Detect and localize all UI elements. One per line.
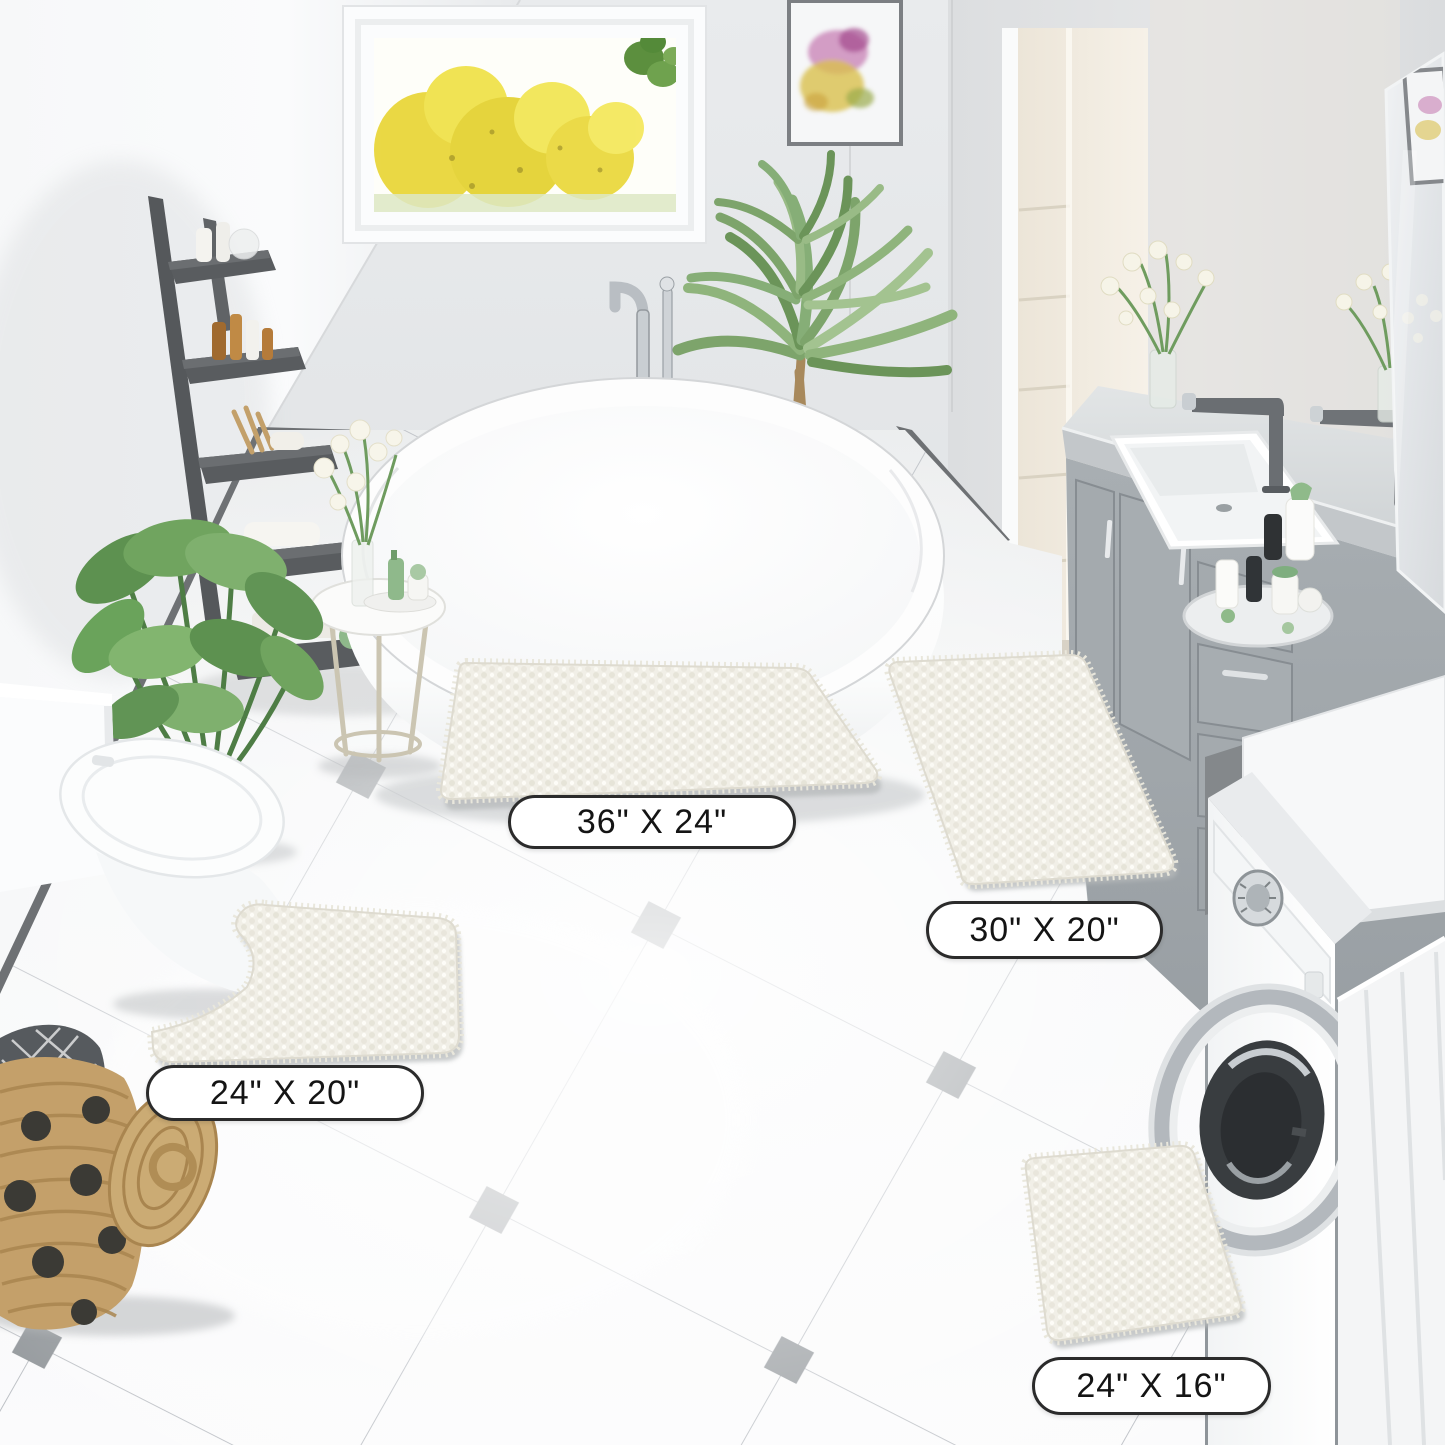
mat-36x24	[441, 663, 881, 810]
window	[343, 6, 706, 243]
wall-art	[789, 1, 901, 144]
size-label-36x24: 36" X 24"	[508, 795, 796, 849]
size-label-24x16: 24" X 16"	[1032, 1357, 1271, 1415]
bathroom-product-image: 36" X 24" 30" X 20" 24" X 20" 24" X 16"	[0, 0, 1445, 1445]
size-label-24x20: 24" X 20"	[146, 1065, 424, 1121]
window-view	[374, 31, 685, 212]
hedge-strip	[374, 194, 676, 212]
bathroom-scene	[0, 0, 1445, 1445]
side-cabinet-panel	[1338, 938, 1445, 1445]
size-label-30x20: 30" X 20"	[926, 901, 1163, 959]
sink-drain	[1216, 504, 1232, 512]
